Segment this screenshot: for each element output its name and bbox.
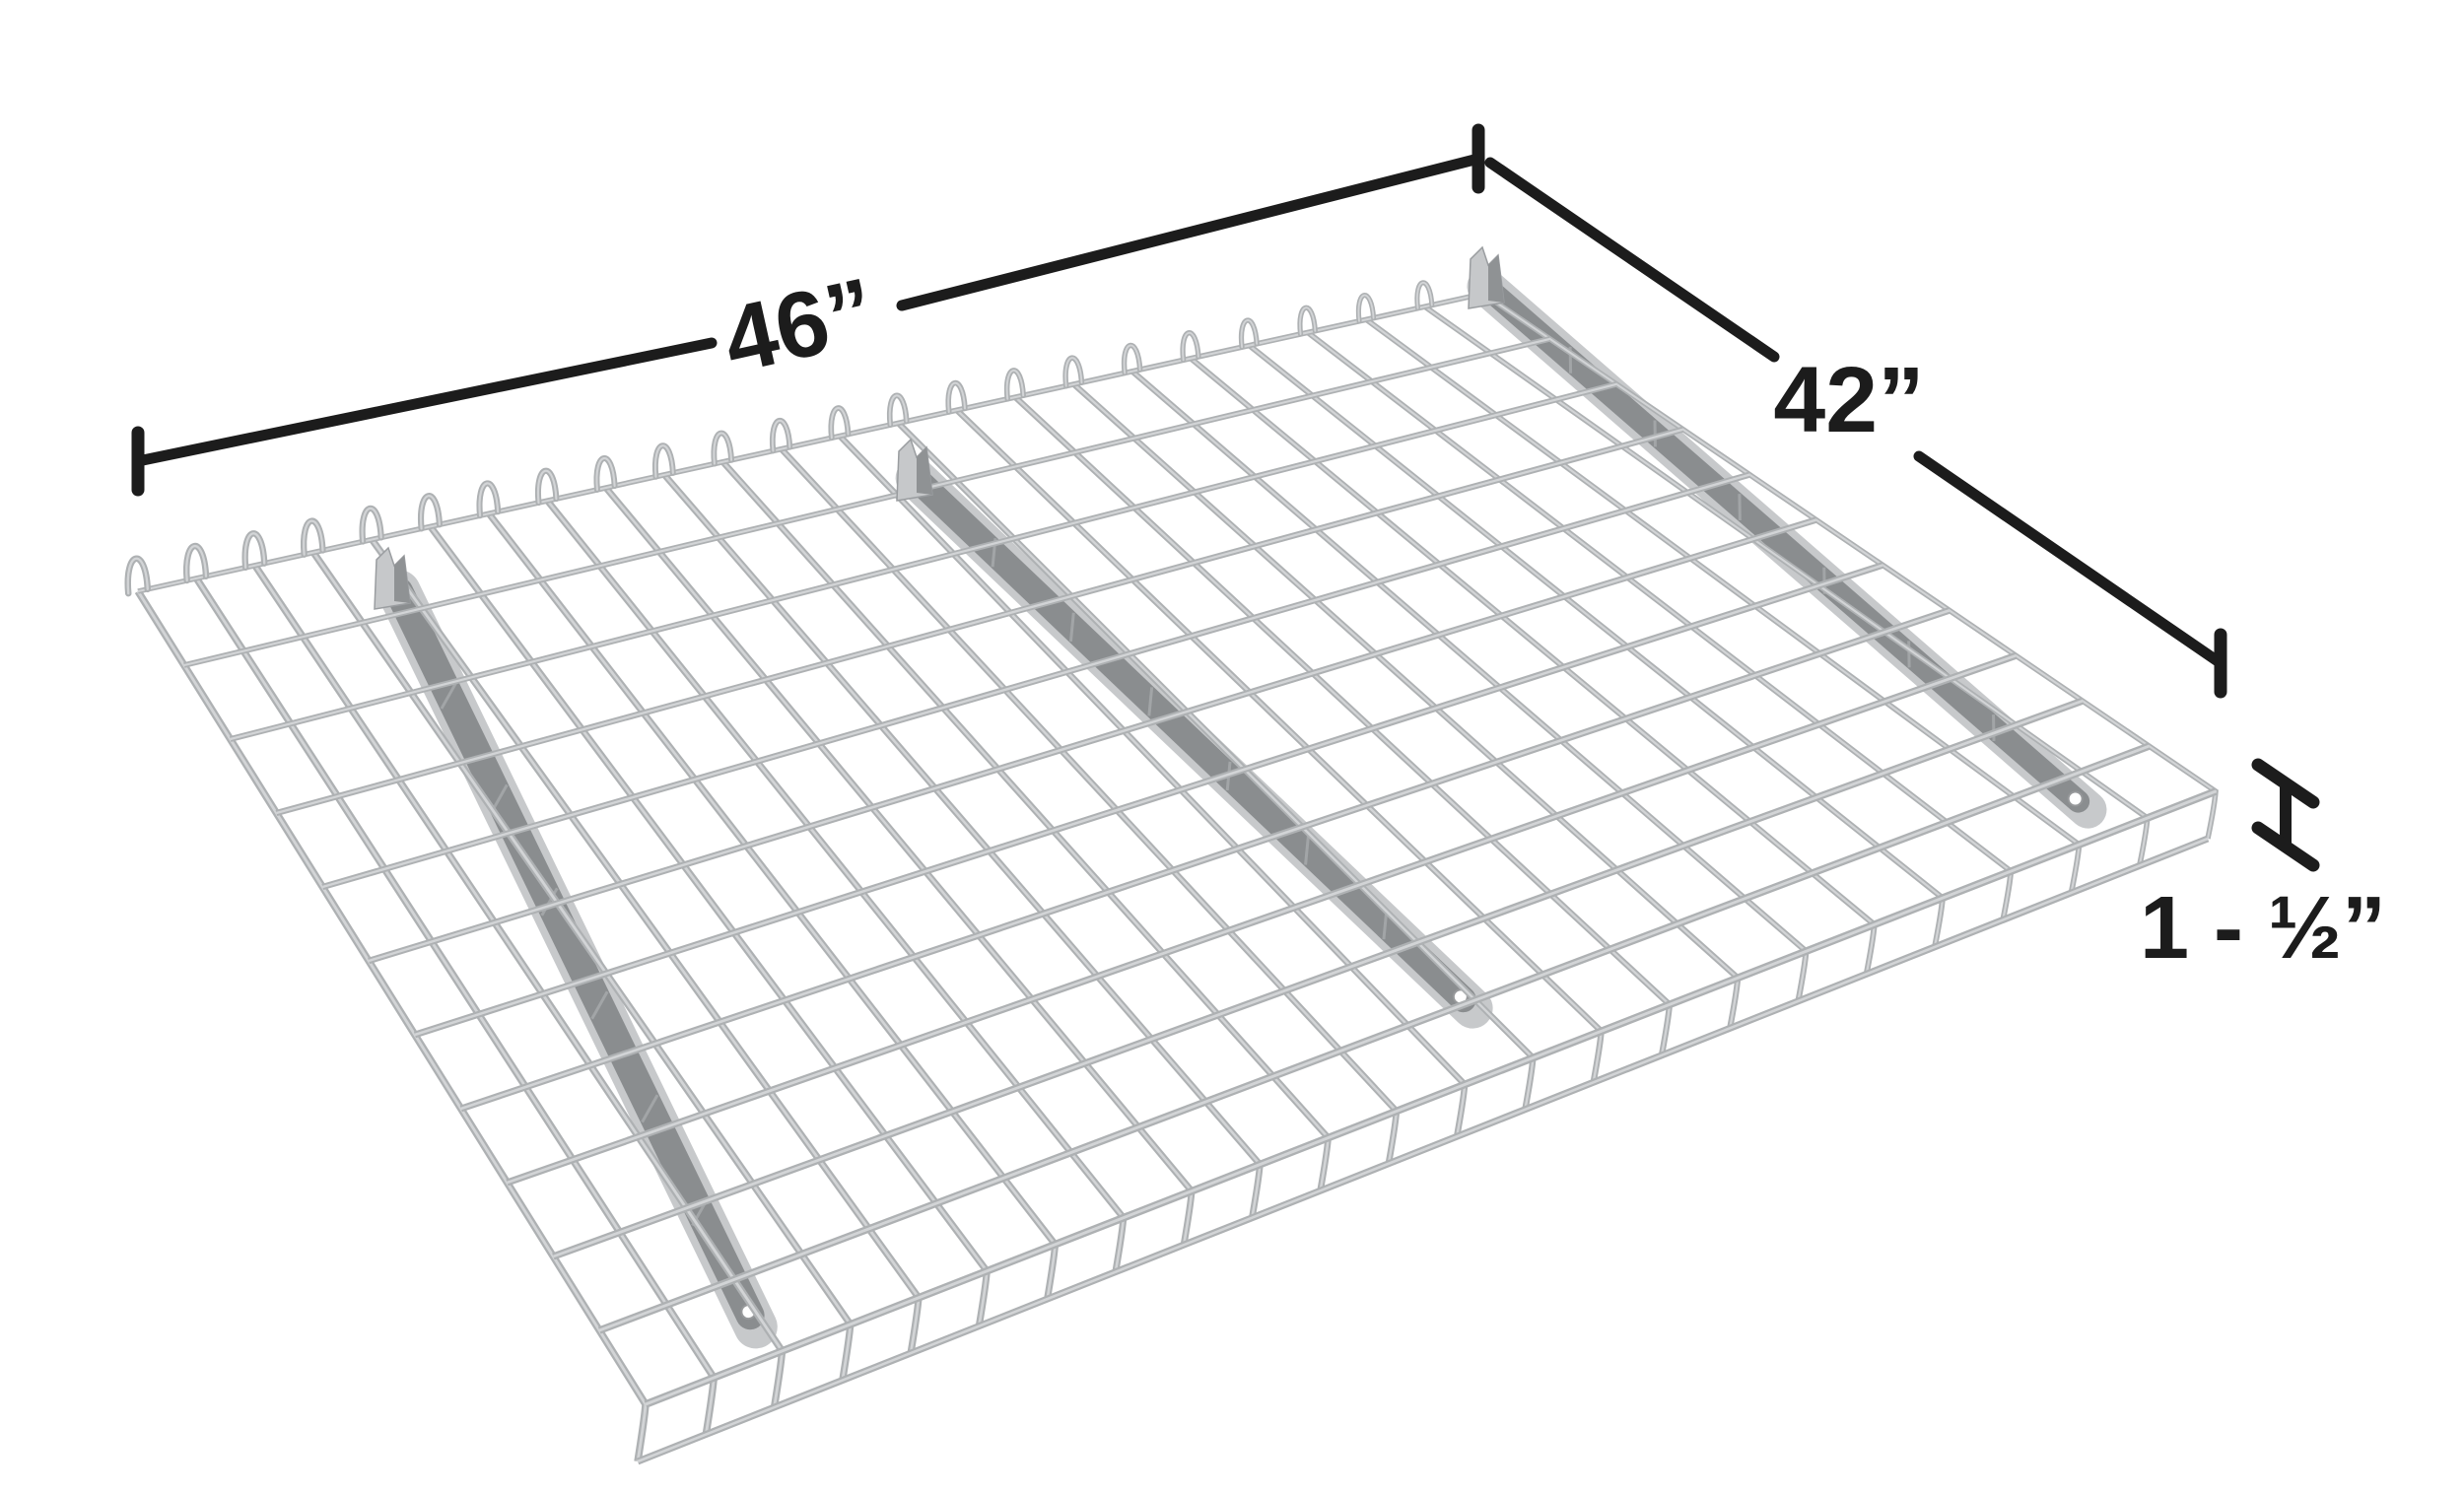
long-wire-highlight — [276, 430, 1682, 813]
height-dimension-label: 1 - ½” — [2140, 879, 2386, 978]
width-dimension-line — [138, 343, 712, 461]
figure-canvas: 46”42”1 - ½” — [0, 0, 2464, 1494]
long-wire-highlight — [184, 339, 1550, 665]
front-skirt-rail-highlight — [638, 839, 2208, 1461]
cross-wire-highlight — [1191, 359, 1874, 975]
depth-dimension-label: 42” — [1773, 348, 1924, 452]
width-dimension-label: 46” — [715, 258, 885, 393]
cross-wire-highlight — [138, 591, 646, 1461]
width-dimension-line — [902, 159, 1478, 306]
cross-wire — [138, 591, 646, 1461]
channel-bolt-hole — [2069, 792, 2083, 806]
cross-wire — [1191, 359, 1874, 975]
depth-dimension-line — [1919, 456, 2221, 663]
wire-deck-diagram: 46”42”1 - ½” — [0, 0, 2464, 1494]
long-wire-highlight — [599, 746, 2149, 1330]
cross-wire-highlight — [1366, 319, 2079, 893]
cross-wire — [1366, 319, 2079, 893]
long-wire-highlight — [461, 610, 1950, 1109]
